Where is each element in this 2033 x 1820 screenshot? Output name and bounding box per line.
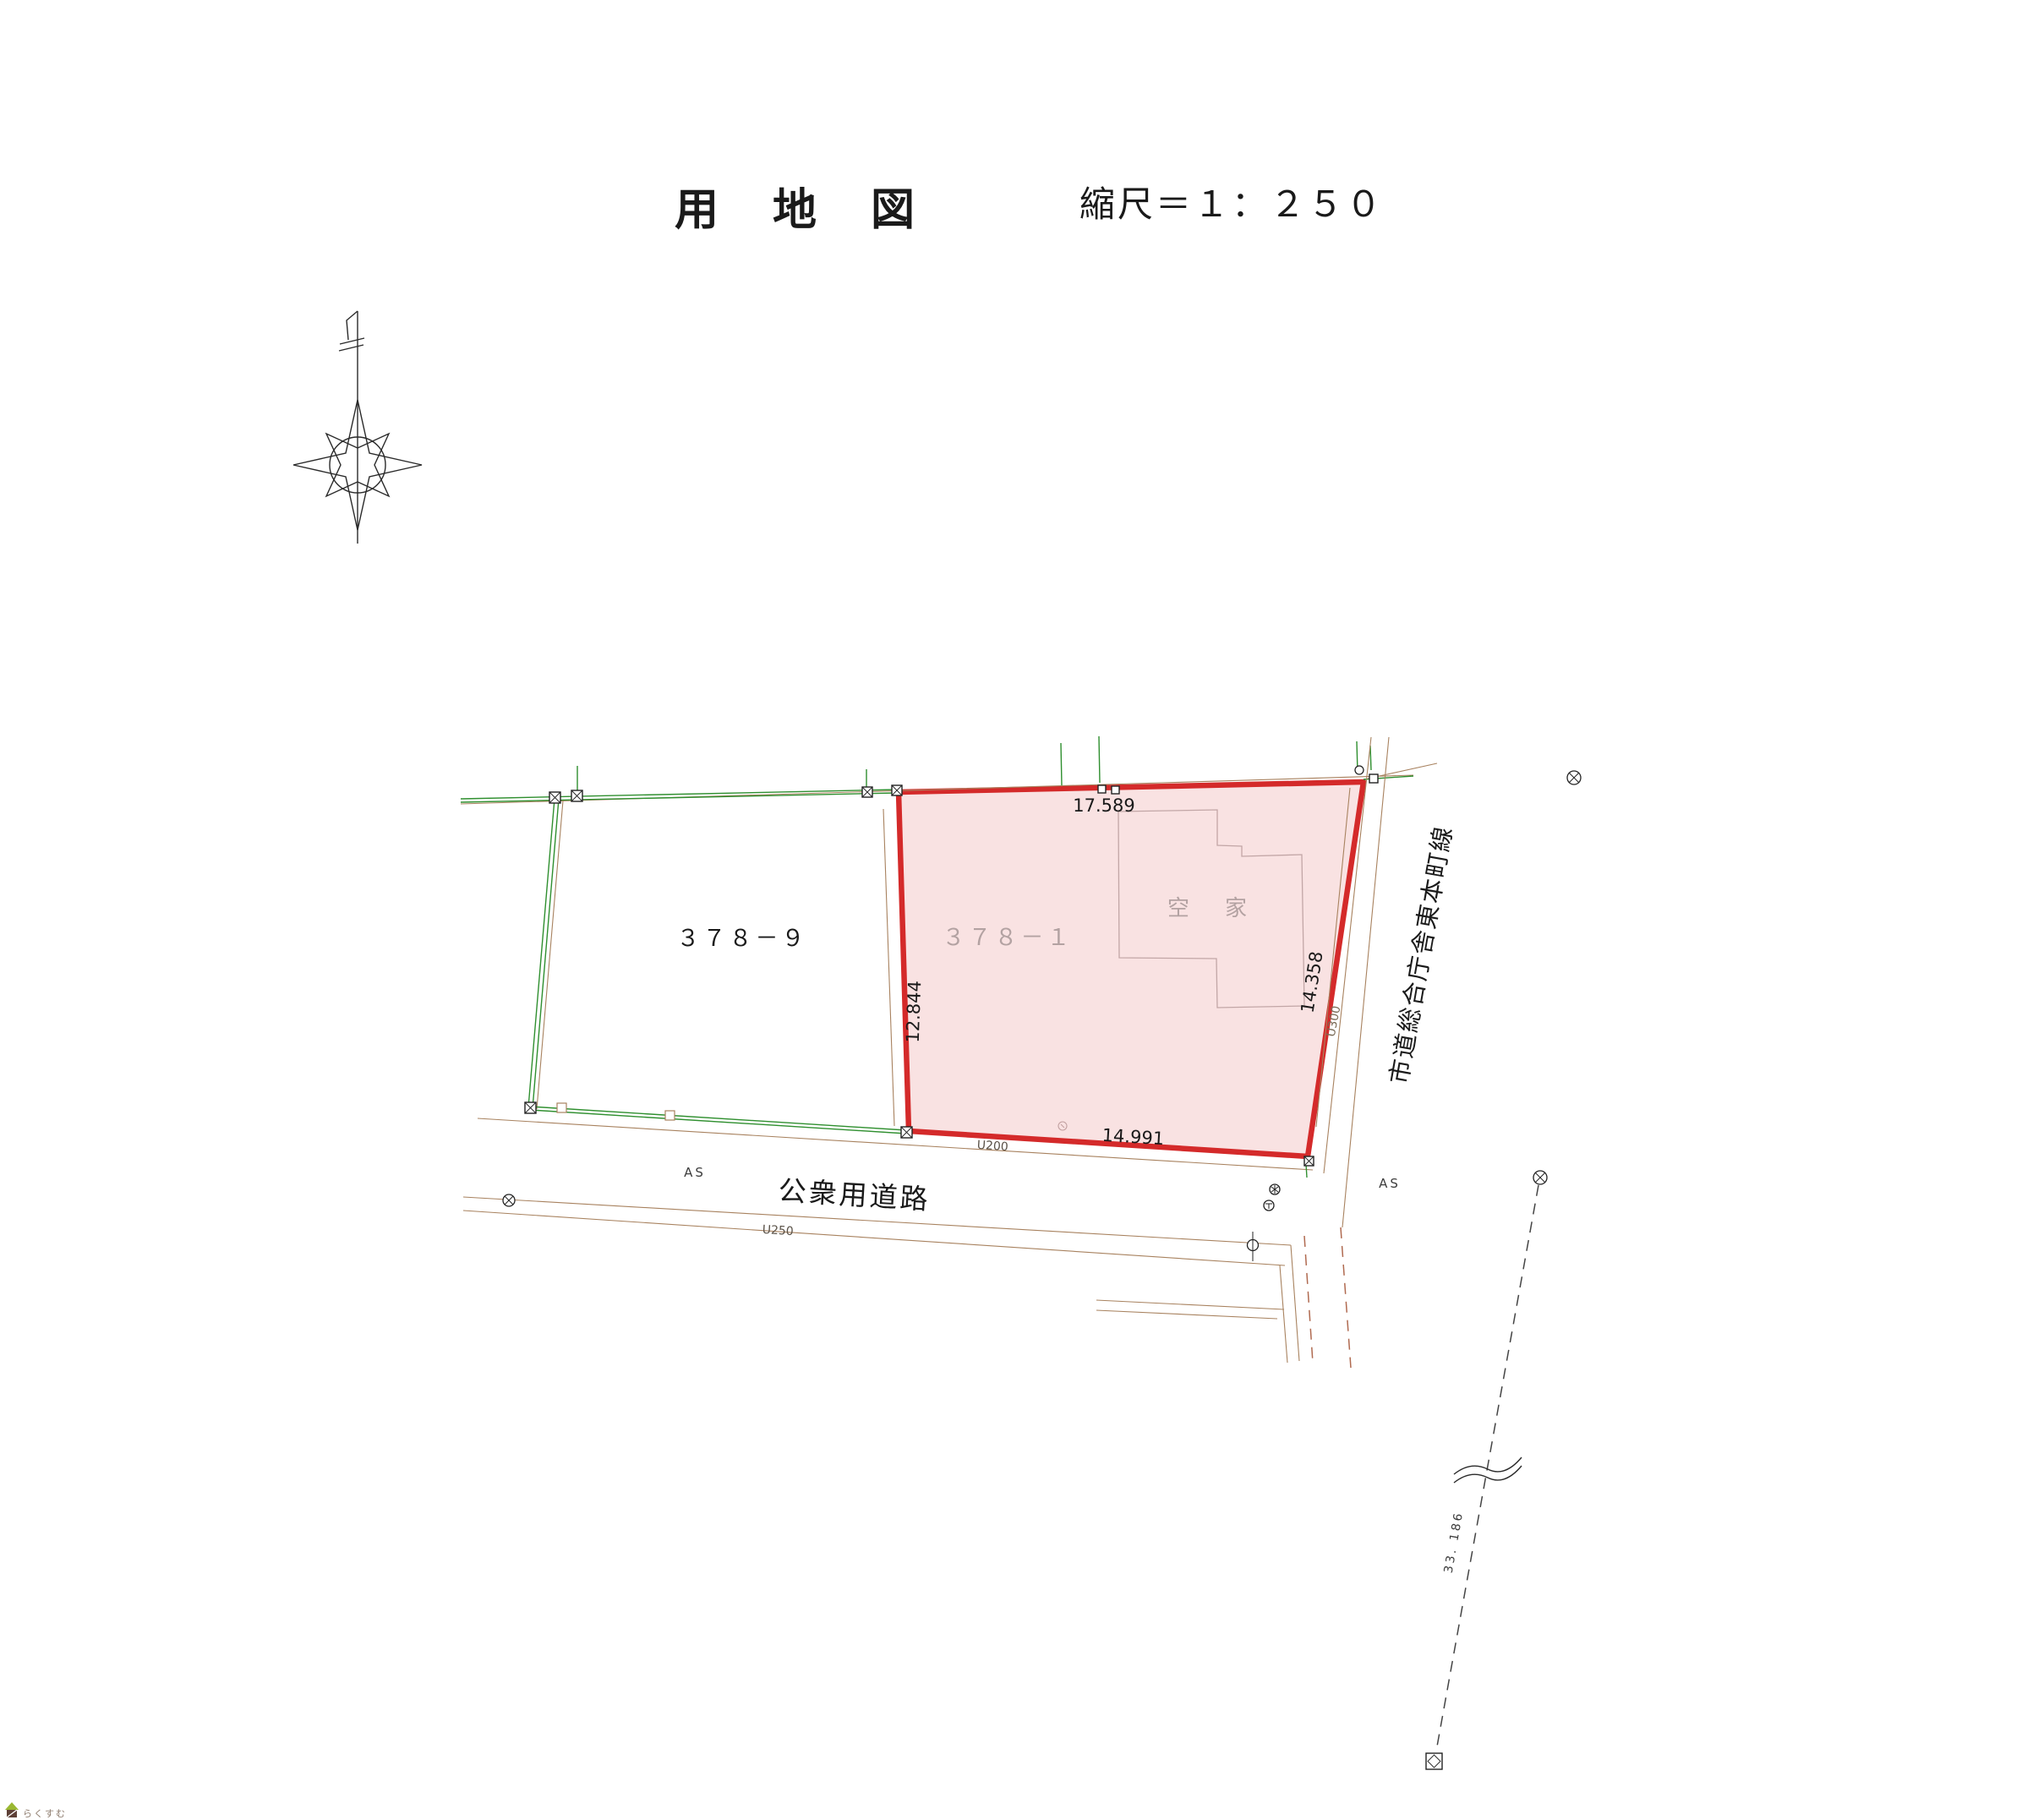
gutter-u200-label: U200 (976, 1139, 1008, 1155)
dimension-bottom: 14.991 (1101, 1125, 1165, 1149)
logo-text: らくすむ (23, 1808, 67, 1819)
surface-as-label-left: AS (684, 1165, 706, 1180)
east-road-name: 市道総合庁舎東本町線 (1384, 823, 1457, 1086)
south-road-lines (463, 1197, 1351, 1368)
circle-star-icon (1270, 1184, 1280, 1194)
corner-circle-icon (1355, 766, 1364, 774)
parcel-subject-number: ３７８－１ (943, 925, 1074, 951)
circle-glyph-icon (1264, 1200, 1274, 1211)
benchmark-circle-x-icon (1533, 1171, 1547, 1184)
land-use-map-page: 用 地 図 縮尺＝１：２５０ (0, 0, 2033, 1820)
dimension-top: 17.589 (1073, 795, 1134, 816)
compass-north-icon (293, 311, 422, 544)
survey-distance-line (1426, 1171, 1547, 1769)
building-label: 空 家 (1167, 896, 1254, 921)
logo: らくすむ (5, 1802, 67, 1819)
parcel-left-number: ３７８－９ (677, 926, 808, 952)
survey-point-icon (1248, 1232, 1259, 1261)
manhole-circle-x-icon (503, 1194, 515, 1206)
dimension-left: 12.844 (903, 981, 926, 1043)
survey-distance-label: 33. 186 (1442, 1510, 1467, 1574)
south-road-name: 公衆用道路 (778, 1174, 932, 1216)
house-icon (5, 1802, 19, 1817)
parcel-378-1-boundary (899, 782, 1364, 1156)
surface-as-label-right: AS (1379, 1176, 1401, 1191)
parcel-378-9 (531, 790, 894, 1126)
map-scale-label: 縮尺＝１：２５０ (1079, 183, 1384, 225)
survey-end-marker (1426, 1753, 1442, 1769)
manhole-circle-x-icon (1567, 771, 1581, 784)
gutter-u250-label: U250 (762, 1223, 794, 1238)
map-canvas: 用 地 図 縮尺＝１：２５０ (0, 0, 2033, 1820)
page-title: 用 地 図 (675, 185, 920, 236)
